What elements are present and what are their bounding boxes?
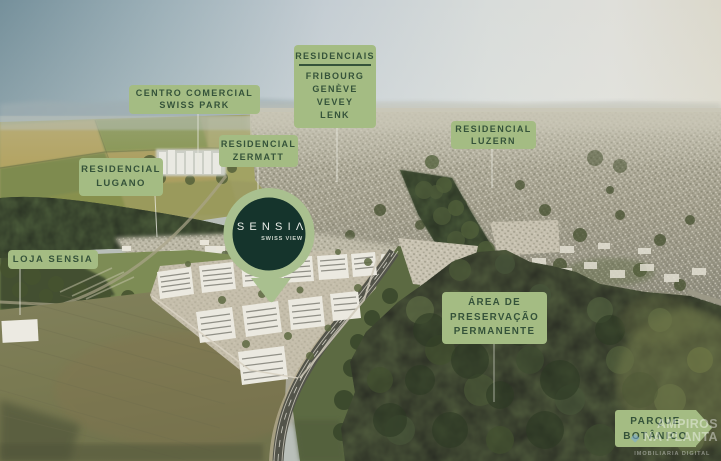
- svg-text:SENSIΛ: SENSIΛ: [237, 221, 309, 233]
- svg-text:SWISS VIEW: SWISS VIEW: [261, 236, 303, 242]
